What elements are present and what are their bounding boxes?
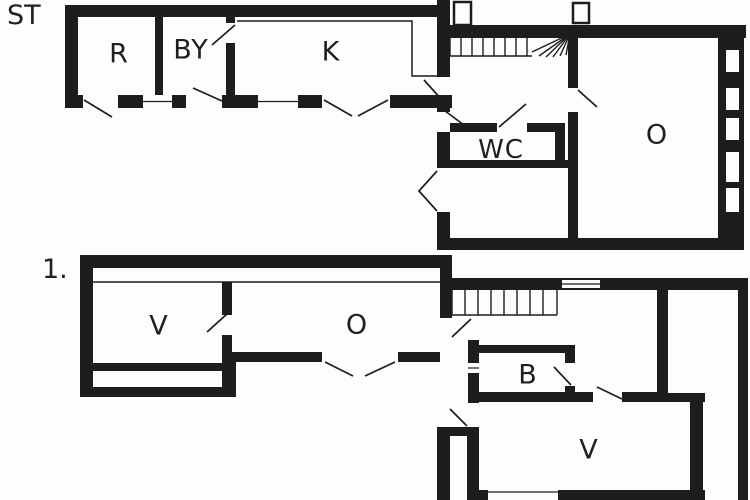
room-label-v2: V xyxy=(579,437,598,464)
room-label-by: BY xyxy=(173,37,209,64)
room-label-k: K xyxy=(322,39,341,66)
first-floor-doors xyxy=(207,314,622,426)
room-label-r: R xyxy=(109,41,129,68)
room-label-wc: WC xyxy=(478,137,524,163)
floor-label-first: 1. xyxy=(42,256,68,283)
room-label-v-first: V xyxy=(149,313,168,340)
ground-floor-walls xyxy=(65,0,746,250)
floor-plan-drawing xyxy=(0,0,750,500)
first-floor-stairs xyxy=(452,290,557,315)
room-label-o-first: O xyxy=(346,312,368,339)
room-label-b: B xyxy=(518,362,538,389)
first-floor-walls xyxy=(80,255,748,500)
floor-label-ground: ST xyxy=(7,2,41,29)
room-label-o-ground: O xyxy=(646,122,668,149)
